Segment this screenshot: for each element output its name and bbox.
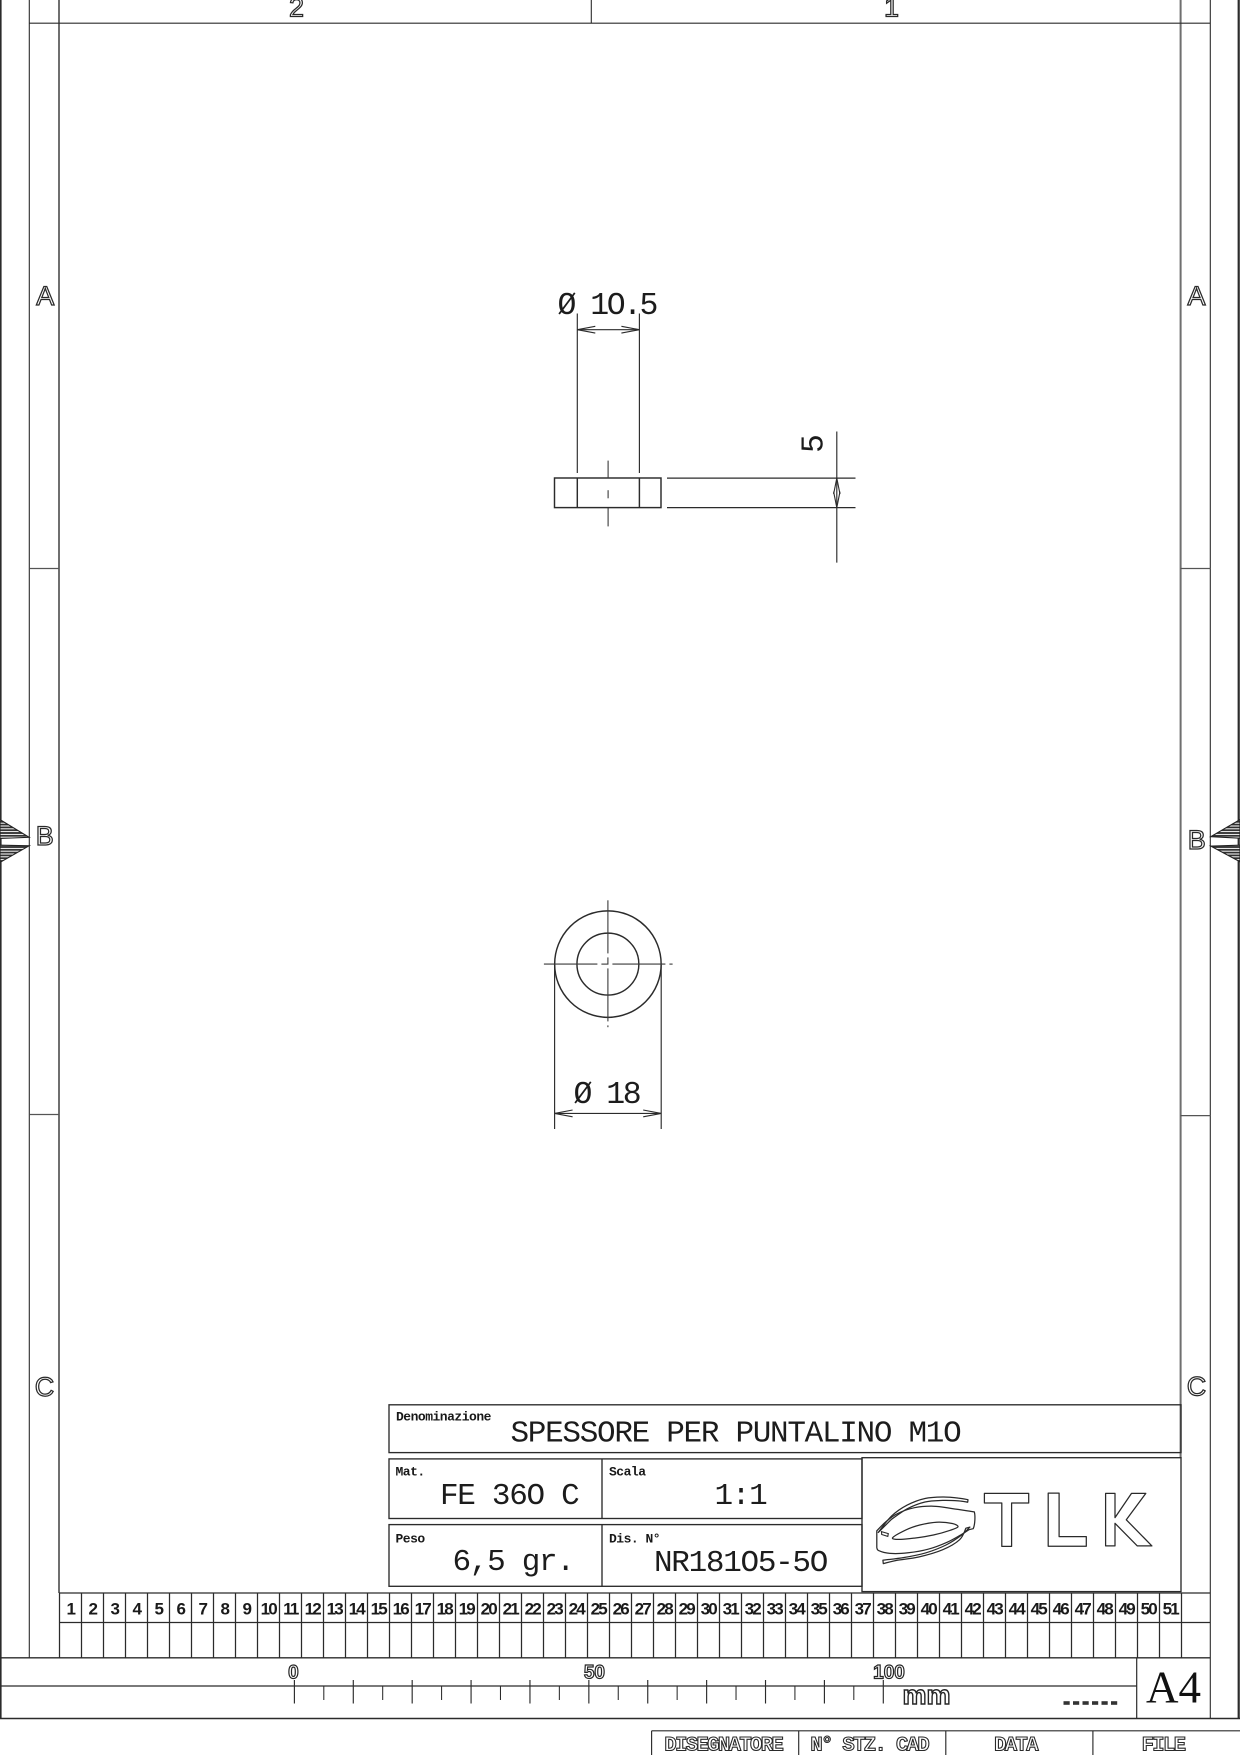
- svg-text:50: 50: [1141, 1600, 1158, 1619]
- svg-text:N° STZ. CAD: N° STZ. CAD: [810, 1735, 929, 1755]
- svg-text:22: 22: [525, 1600, 542, 1619]
- svg-text:A4: A4: [1146, 1663, 1201, 1713]
- svg-text:NR181O5-5O: NR181O5-5O: [654, 1546, 828, 1581]
- svg-text:18: 18: [437, 1600, 454, 1619]
- svg-text:46: 46: [1053, 1600, 1070, 1619]
- svg-text:C: C: [1187, 1372, 1207, 1402]
- svg-text:10: 10: [261, 1600, 278, 1619]
- svg-text:6: 6: [176, 1600, 185, 1619]
- svg-text:2: 2: [88, 1600, 97, 1619]
- svg-text:20: 20: [481, 1600, 498, 1619]
- svg-text:42: 42: [965, 1600, 982, 1619]
- svg-text:45: 45: [1031, 1600, 1048, 1619]
- svg-text:8: 8: [220, 1600, 229, 1619]
- svg-text:SPESSORE PER PUNTALINO M1O: SPESSORE PER PUNTALINO M1O: [511, 1417, 962, 1452]
- svg-text:47: 47: [1075, 1600, 1092, 1619]
- svg-text:44: 44: [1009, 1600, 1027, 1619]
- svg-text:21: 21: [503, 1600, 520, 1619]
- svg-text:Dis. N°: Dis. N°: [609, 1532, 660, 1547]
- svg-text:30: 30: [701, 1600, 718, 1619]
- svg-text:28: 28: [657, 1600, 674, 1619]
- svg-text:41: 41: [943, 1600, 960, 1619]
- svg-text:FILE: FILE: [1142, 1735, 1186, 1755]
- svg-text:B: B: [1188, 825, 1206, 855]
- svg-text:Peso: Peso: [396, 1532, 426, 1547]
- svg-text:37: 37: [855, 1600, 872, 1619]
- svg-text:2: 2: [289, 0, 304, 23]
- svg-text:51: 51: [1163, 1600, 1180, 1619]
- svg-text:5: 5: [797, 434, 832, 453]
- svg-text:17: 17: [415, 1600, 432, 1619]
- svg-text:Mat.: Mat.: [396, 1465, 425, 1480]
- svg-text:23: 23: [547, 1600, 564, 1619]
- svg-text:5: 5: [154, 1600, 163, 1619]
- svg-text:100: 100: [873, 1663, 905, 1684]
- svg-text:35: 35: [811, 1600, 828, 1619]
- svg-text:B: B: [36, 821, 54, 851]
- svg-text:43: 43: [987, 1600, 1004, 1619]
- svg-text:34: 34: [789, 1600, 807, 1619]
- svg-text:24: 24: [569, 1600, 587, 1619]
- svg-text:49: 49: [1119, 1600, 1136, 1619]
- svg-text:26: 26: [613, 1600, 630, 1619]
- svg-text:32: 32: [745, 1600, 762, 1619]
- svg-text:14: 14: [349, 1600, 367, 1619]
- svg-text:16: 16: [393, 1600, 410, 1619]
- svg-text:7: 7: [198, 1600, 207, 1619]
- svg-text:38: 38: [877, 1600, 894, 1619]
- svg-text:Denominazione: Denominazione: [396, 1410, 492, 1425]
- svg-text:A: A: [1187, 281, 1205, 311]
- svg-text:0: 0: [288, 1663, 299, 1684]
- svg-text:1:1: 1:1: [715, 1479, 768, 1514]
- svg-text:50: 50: [584, 1663, 605, 1684]
- svg-text:25: 25: [591, 1600, 608, 1619]
- svg-text:13: 13: [327, 1600, 344, 1619]
- svg-text:A: A: [36, 281, 54, 311]
- svg-text:36: 36: [833, 1600, 850, 1619]
- svg-text:29: 29: [679, 1600, 696, 1619]
- svg-text:39: 39: [899, 1600, 916, 1619]
- svg-text:6,5 gr.: 6,5 gr.: [453, 1545, 574, 1580]
- svg-text:mm: mm: [902, 1680, 950, 1710]
- svg-text:DATA: DATA: [994, 1735, 1039, 1755]
- svg-text:1: 1: [884, 0, 899, 23]
- svg-text:Ø 18: Ø 18: [574, 1078, 640, 1113]
- svg-text:Ø 1O.5: Ø 1O.5: [558, 289, 657, 324]
- svg-text:9: 9: [242, 1600, 251, 1619]
- svg-text:15: 15: [371, 1600, 388, 1619]
- svg-text:11: 11: [283, 1600, 299, 1619]
- svg-text:48: 48: [1097, 1600, 1114, 1619]
- svg-text:27: 27: [635, 1600, 652, 1619]
- svg-text:12: 12: [305, 1600, 322, 1619]
- svg-text:31: 31: [723, 1600, 740, 1619]
- svg-text:40: 40: [921, 1600, 938, 1619]
- svg-text:C: C: [35, 1372, 55, 1402]
- svg-text:FE 36O C: FE 36O C: [440, 1479, 579, 1514]
- svg-text:1: 1: [66, 1600, 75, 1619]
- svg-text:19: 19: [459, 1600, 476, 1619]
- svg-text:3: 3: [110, 1600, 119, 1619]
- svg-text:Scala: Scala: [609, 1465, 646, 1480]
- svg-text:DISEGNATORE: DISEGNATORE: [664, 1735, 783, 1755]
- svg-text:33: 33: [767, 1600, 784, 1619]
